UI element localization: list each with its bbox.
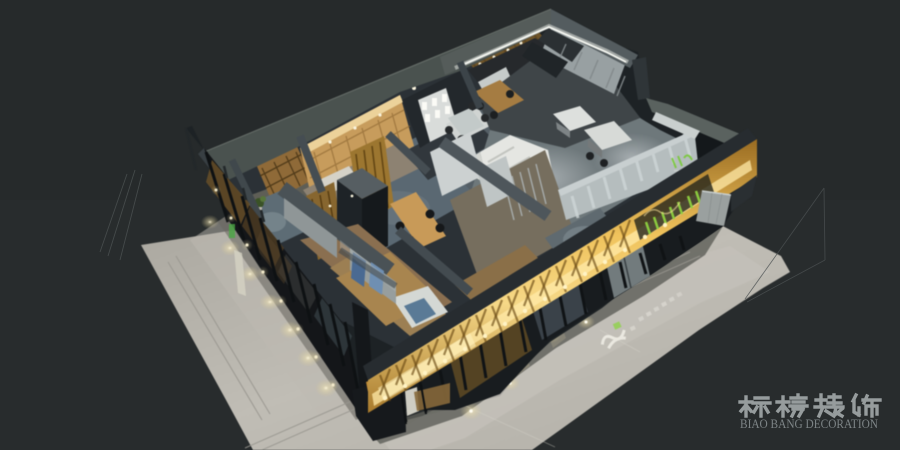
- svg-text:BIAO BANG DECORATION: BIAO BANG DECORATION: [740, 417, 878, 431]
